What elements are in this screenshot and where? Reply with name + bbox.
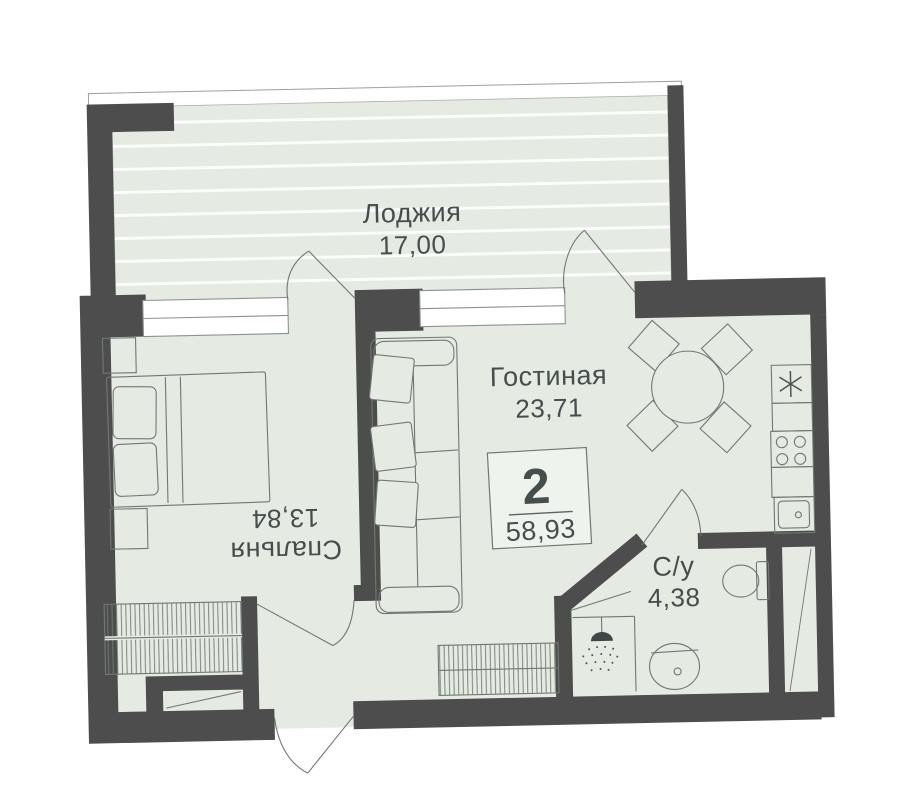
loggia-name-label: Лоджия <box>362 197 461 229</box>
floor-plan-svg: Лоджия 17,00 Гостиная 23,71 Спальня 13,8… <box>0 0 900 801</box>
bedroom-area-label: 13,84 <box>251 503 319 534</box>
living-name-label: Гостиная <box>489 360 607 392</box>
hall-furniture <box>438 643 559 696</box>
bed-pillow-1 <box>113 387 156 439</box>
living-area-label: 23,71 <box>515 392 583 423</box>
bathroom-sink-icon <box>649 643 700 690</box>
bedroom-name-label: Спальня <box>230 534 343 566</box>
bed-pillow-2 <box>113 443 158 497</box>
unit-rooms-count: 2 <box>521 458 552 515</box>
wardrobe-bedroom <box>104 602 242 675</box>
sofa-pillow-2 <box>370 422 416 472</box>
dining-table <box>651 350 724 423</box>
plan-root: Лоджия 17,00 Гостиная 23,71 Спальня 13,8… <box>75 78 835 777</box>
bathroom-area-label: 4,38 <box>647 582 700 613</box>
bathroom-name-label: С/у <box>652 551 695 582</box>
sofa-pillow-3 <box>375 480 419 528</box>
unit-summary-box: 2 58,93 <box>487 448 591 549</box>
sofa-pillow-1 <box>369 354 414 403</box>
unit-total-area: 58,93 <box>505 513 577 547</box>
loggia-area-label: 17,00 <box>379 229 447 260</box>
floor-plan-page: { "apartment": { "rooms_count": "2", "to… <box>0 0 900 801</box>
